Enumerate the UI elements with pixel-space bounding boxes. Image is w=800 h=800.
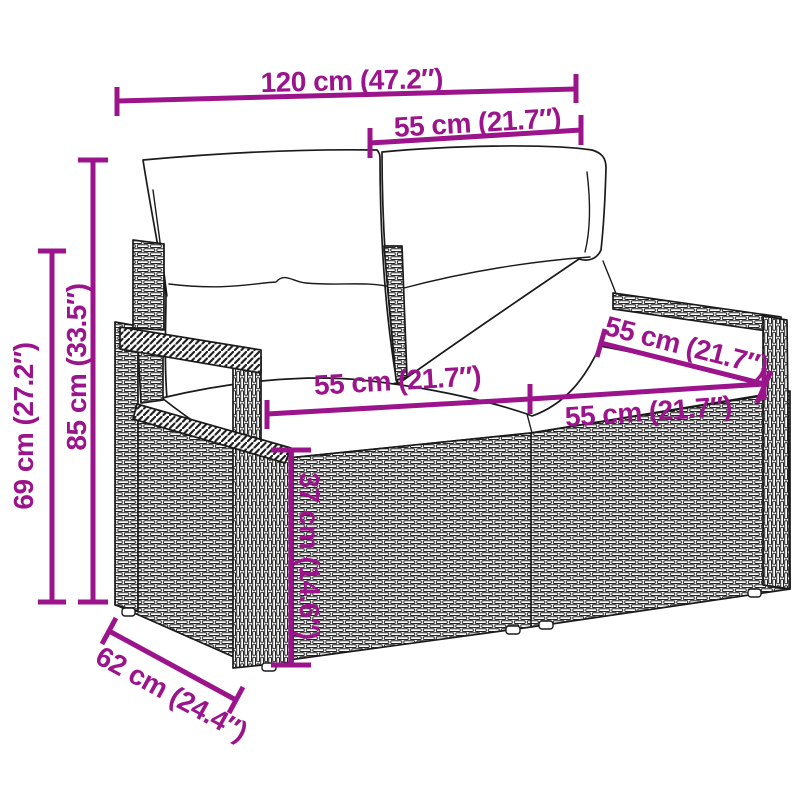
back-cushion-left [143,150,397,402]
back-cushion-right [382,146,616,384]
dimension-overall-height: 85 cm (33.5″) [61,160,108,602]
dimension-arm-height-label: 69 cm (27.2″) [8,342,39,509]
dimension-diagram-canvas: 120 cm (47.2″) 55 cm (21.7″) 85 cm (33.5… [0,0,800,800]
dimension-back-section-width-label: 55 cm (21.7″) [393,102,562,143]
dimension-arm-height: 69 cm (27.2″) [8,251,66,602]
dimension-overall-height-label: 85 cm (33.5″) [61,283,92,450]
dimension-overall-width-label: 120 cm (47.2″) [260,63,443,98]
left-arm-outer-post [115,322,138,611]
left-arm-back-post [133,240,164,330]
sofa-dimension-diagram: 120 cm (47.2″) 55 cm (21.7″) 85 cm (33.5… [0,0,800,800]
dimension-seat-height-label: 37 cm (14.6″) [294,472,325,639]
